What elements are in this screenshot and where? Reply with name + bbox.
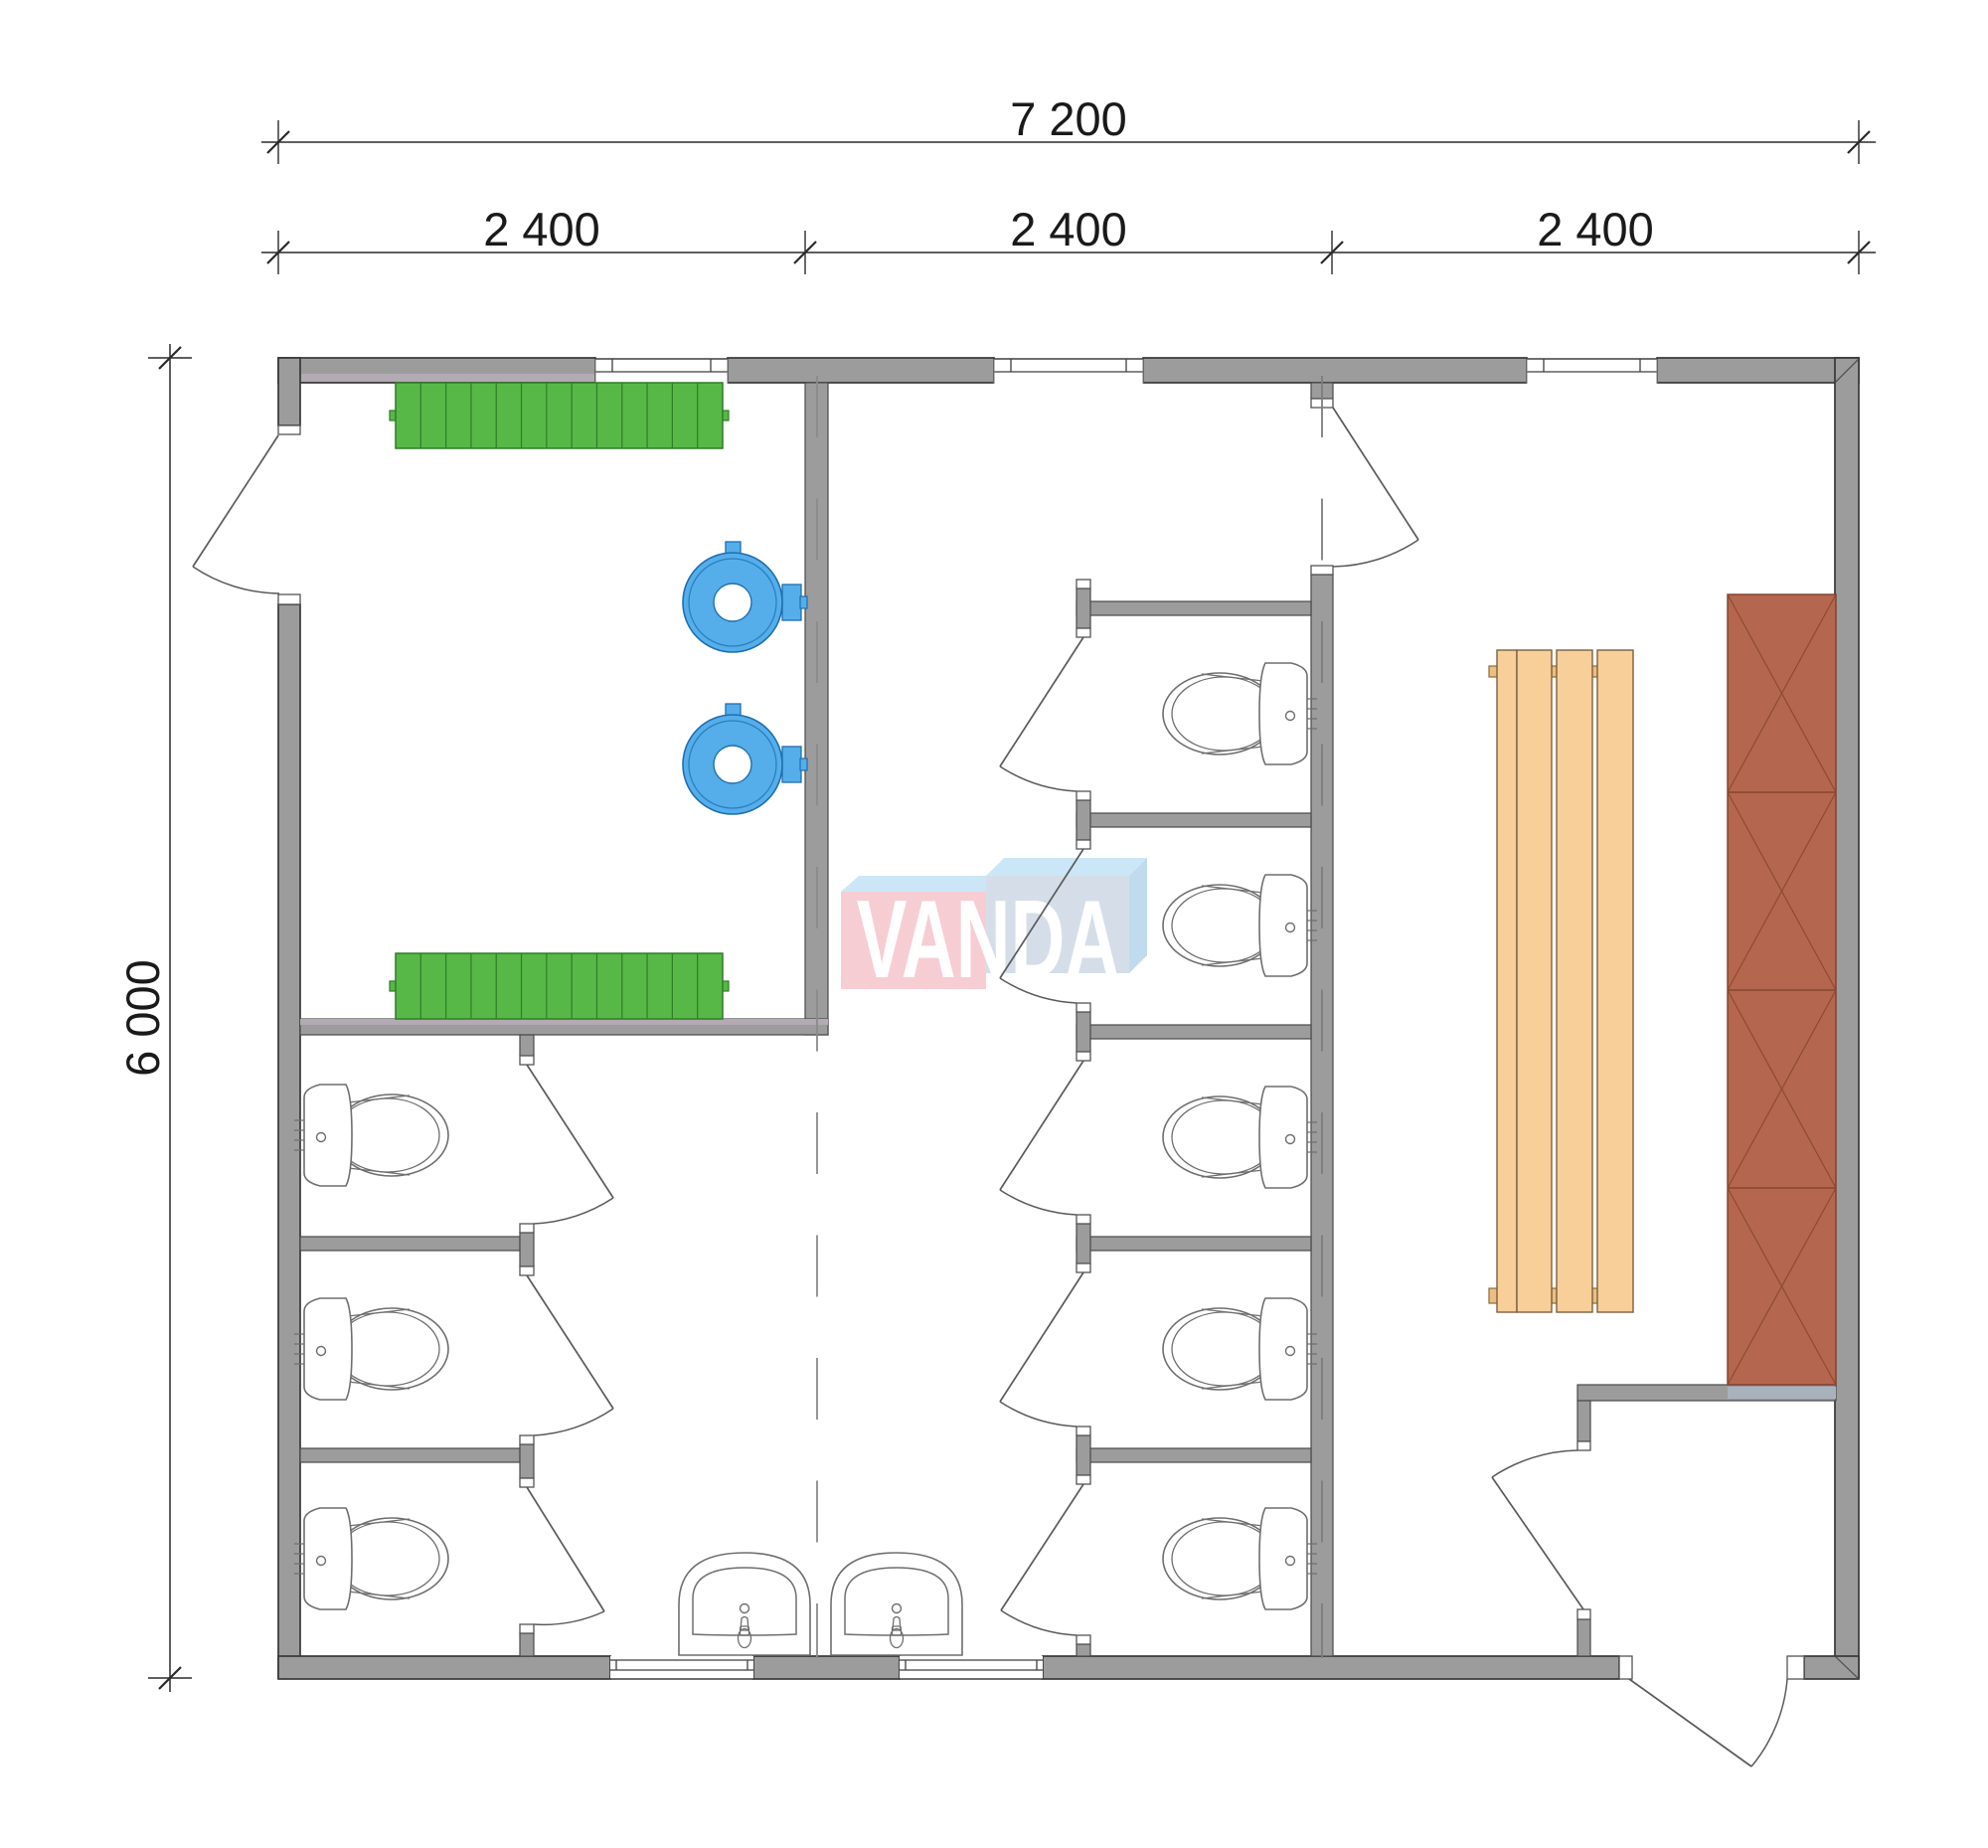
- svg-text:2 400: 2 400: [1010, 203, 1127, 255]
- svg-text:VANDA: VANDA: [857, 879, 1120, 1002]
- svg-text:7 200: 7 200: [1010, 92, 1127, 145]
- svg-text:6 000: 6 000: [116, 959, 169, 1077]
- svg-text:2 400: 2 400: [483, 203, 600, 255]
- svg-text:2 400: 2 400: [1537, 203, 1654, 255]
